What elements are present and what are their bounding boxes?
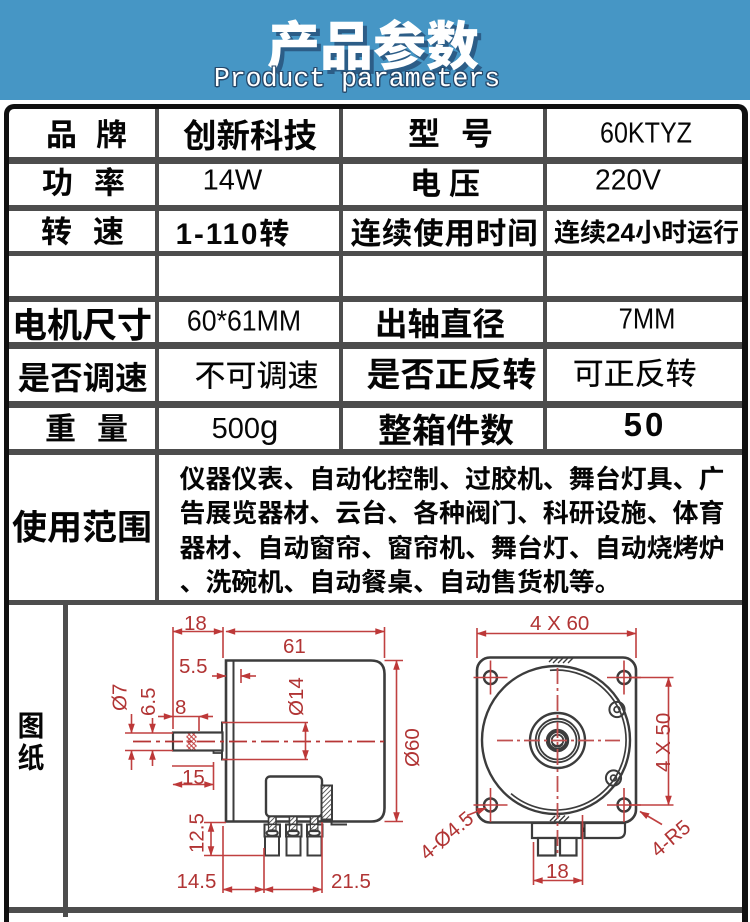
svg-text:8: 8 [175,696,186,719]
svg-text:5.5: 5.5 [179,655,208,678]
svg-text:4-R5: 4-R5 [646,816,695,862]
svg-text:Ø7: Ø7 [109,684,132,711]
svg-text:18: 18 [184,612,207,635]
svg-text:4 X 60: 4 X 60 [530,612,589,635]
svg-text:Ø60: Ø60 [401,728,424,767]
svg-text:4-Ø4.5: 4-Ø4.5 [415,807,478,865]
svg-text:6.5: 6.5 [137,688,160,717]
svg-text:21.5: 21.5 [331,870,371,893]
svg-text:15: 15 [182,766,205,789]
svg-text:61: 61 [283,635,306,658]
svg-text:Ø14: Ø14 [285,677,308,716]
svg-text:18: 18 [546,860,569,883]
svg-text:14.5: 14.5 [177,870,217,893]
svg-text:4 X 50: 4 X 50 [652,713,675,772]
svg-text:12.5: 12.5 [186,813,209,853]
